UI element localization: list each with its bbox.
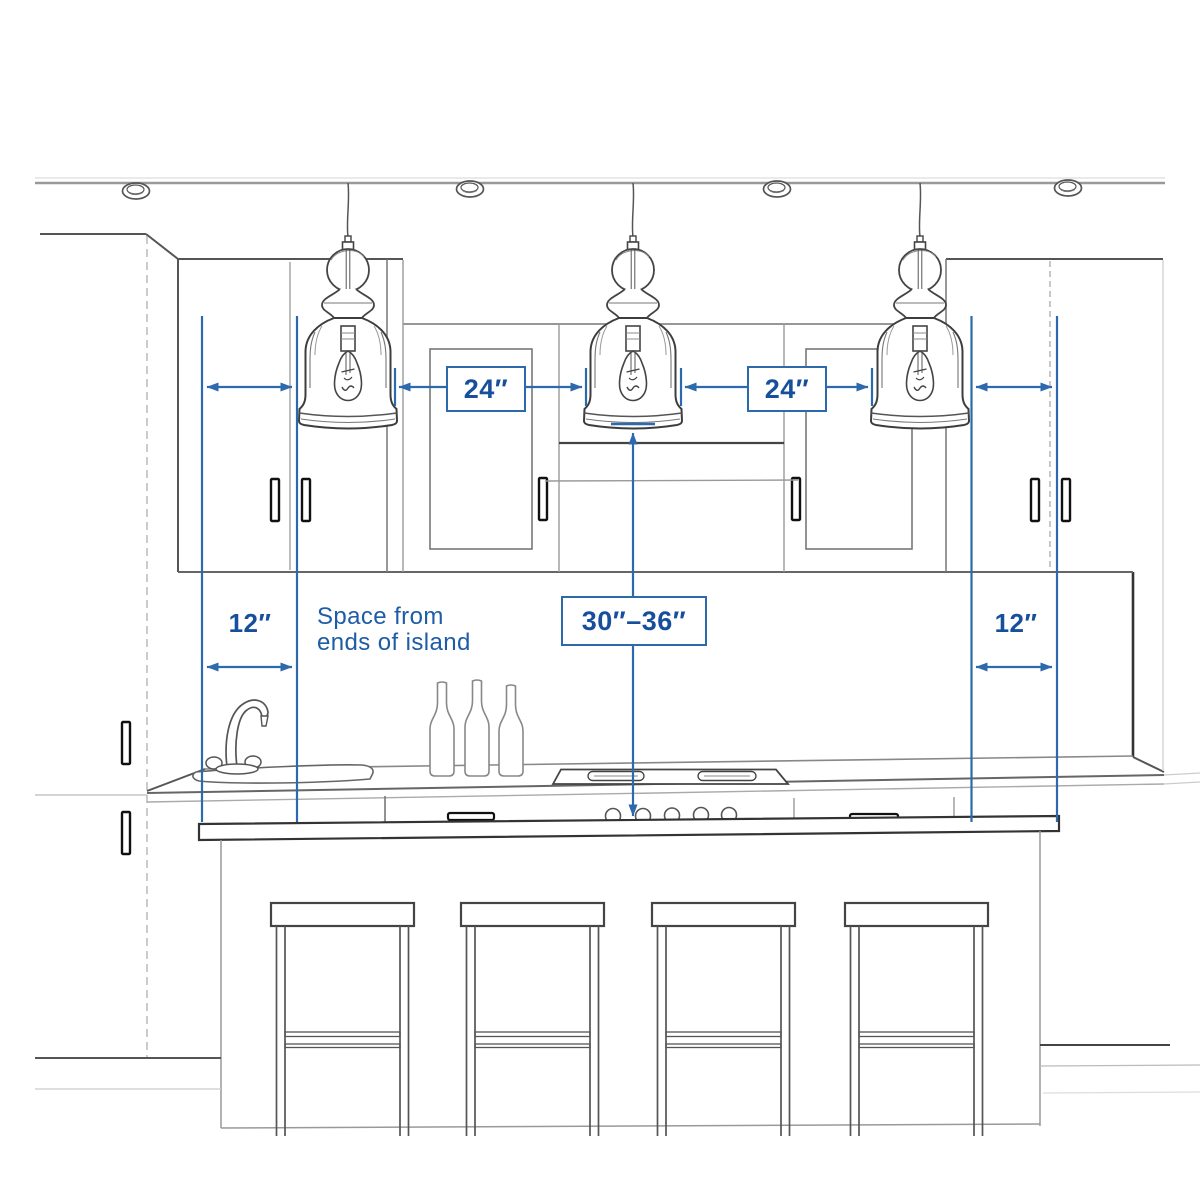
recessed-light-icon [764, 181, 791, 197]
wine-bottles [430, 680, 523, 776]
cabinet-handle-icon [1031, 479, 1039, 521]
island-spacing-note: Space from ends of island [317, 604, 471, 656]
recessed-light-icon [1055, 180, 1082, 196]
bar-stool [271, 903, 414, 1136]
floor-lines [35, 1045, 1200, 1093]
kitchen-pendant-spacing-diagram: 24″ 24″ 30″–36″ 12″ 12″ Space from ends … [0, 0, 1200, 1200]
bar-stool [652, 903, 795, 1136]
bottle-icon [465, 680, 489, 776]
recessed-light-icon [123, 183, 150, 199]
bottle-icon [499, 685, 523, 776]
bar-stool [461, 903, 604, 1136]
island [199, 816, 1059, 1128]
faucet-icon [206, 700, 268, 774]
dim-label-12-left: 12″ [210, 608, 290, 639]
bar-stools [271, 903, 988, 1136]
cabinet-handle-icon [122, 722, 130, 764]
cabinet-handle-icon [122, 812, 130, 854]
dim-label-24-left: 24″ [446, 366, 526, 412]
cabinet-handle-icon [539, 478, 547, 520]
cooktop [553, 770, 788, 785]
bar-stool [845, 903, 988, 1136]
dim-label-12-right: 12″ [976, 608, 1056, 639]
cabinet-handle-icon [271, 479, 279, 521]
ceiling [35, 178, 1165, 183]
left-wall-cabinet [35, 722, 147, 854]
note-line-1: Space from [317, 604, 471, 630]
recessed-light-icon [457, 181, 484, 197]
pendant-light [299, 183, 397, 429]
note-line-2: ends of island [317, 630, 471, 656]
pendant-lights [299, 183, 969, 429]
cabinet-handle-icon [792, 478, 800, 520]
dim-label-30-36: 30″–36″ [561, 596, 707, 646]
range-hood [545, 443, 798, 481]
pendant-light [871, 183, 969, 429]
pendant-light [584, 183, 682, 429]
cabinet-handle-icon [302, 479, 310, 521]
dim-label-24-right: 24″ [747, 366, 827, 412]
bottle-icon [430, 682, 454, 776]
drawer-handle-icon [448, 813, 494, 820]
cabinet-handle-icon [1062, 479, 1070, 521]
